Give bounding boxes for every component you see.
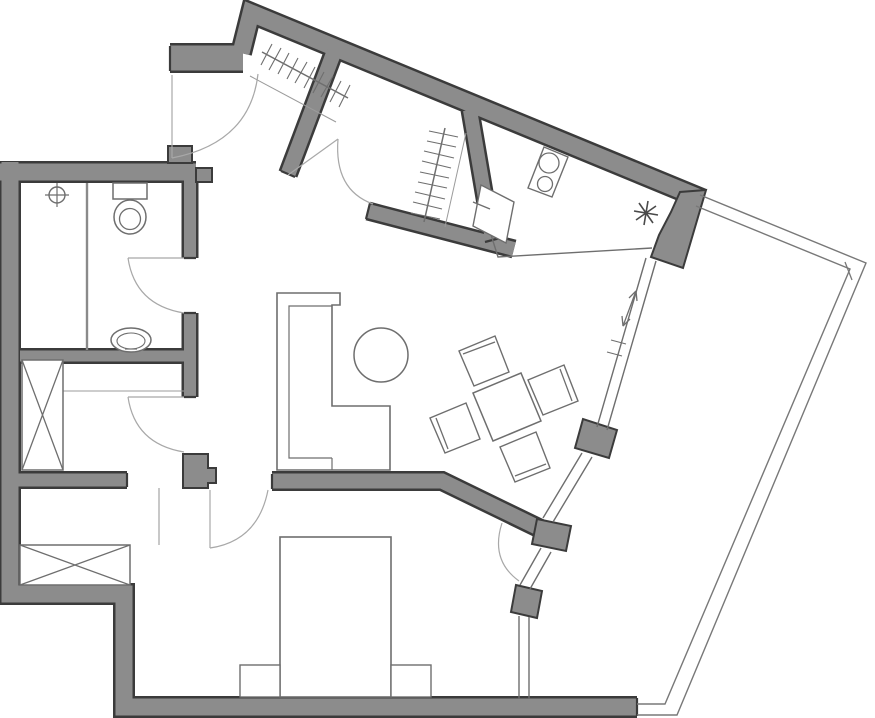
dining-chair-s [500,432,550,482]
balcony-railing-inner [637,206,850,704]
glazed-wall-pier-3 [511,585,542,618]
nightstand-right [391,665,431,697]
floorplan-page [0,0,875,718]
balcony-door-leaf-glazing [520,548,551,589]
glazed-wall-pier-1 [575,419,617,458]
closet-door-arc [338,139,373,204]
boiler-asterisk-icon [634,201,658,225]
window-band-upper-ticks [607,340,626,356]
bedroom-door-pier [183,454,216,488]
stove-frame [528,147,568,197]
walkin-closet-hangers [411,131,458,219]
glazed-wall-pier-2 [532,519,571,551]
bedroom-window-band [519,616,529,699]
bathroom-wall-step [196,168,212,182]
sliding-direction-arrow [623,291,636,326]
kitchen-corner-block [651,190,706,268]
bedroom-door-arc [210,490,268,548]
window-band-upper [597,258,656,430]
balcony-door-arc [498,523,519,581]
storage-door-arc [128,397,184,452]
coffee-table-round [354,328,408,382]
bed [280,537,391,697]
window-band-middle [543,453,592,522]
shower-drain-cross [45,183,69,207]
dining-chair-w [430,403,480,453]
balcony-railing-outer [637,195,866,715]
dining-chair-nw [459,336,509,386]
nightstand-left [240,665,280,697]
floor-plan [0,0,875,718]
toilet-tank [113,183,147,199]
bathroom-door-arc [128,258,184,313]
